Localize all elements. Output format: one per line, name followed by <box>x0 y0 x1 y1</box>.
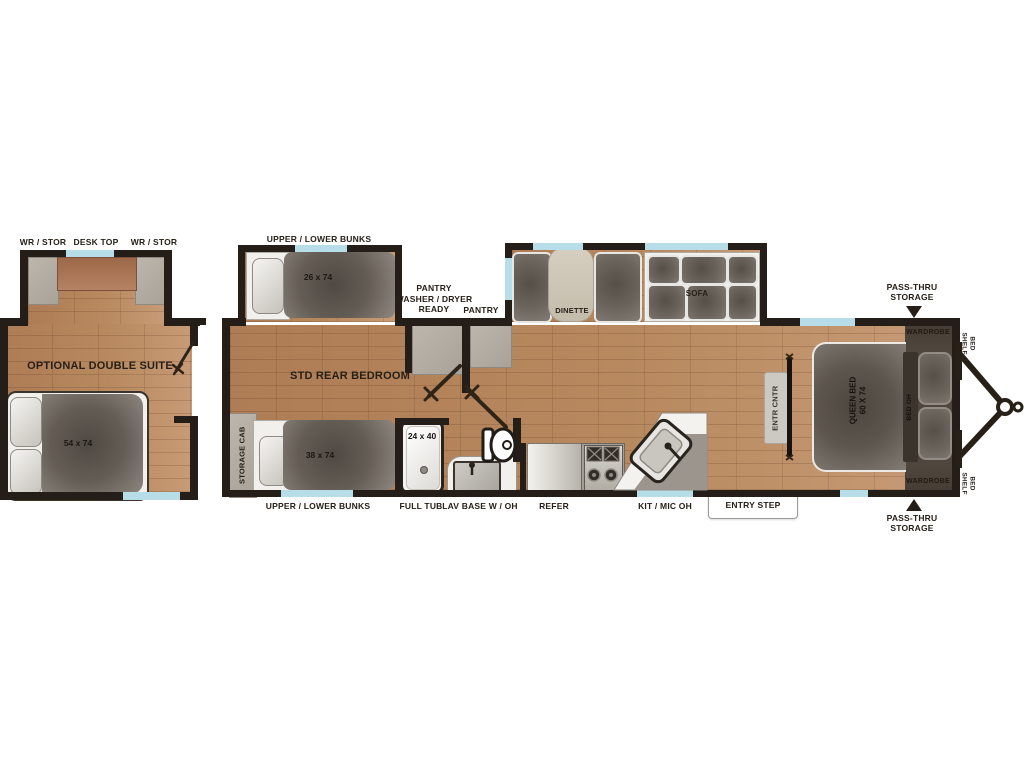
suite-bed-pillow-1 <box>10 397 42 447</box>
bed-shelf-bottom-label: BED SHELF <box>961 472 976 494</box>
bottom-bunk-label: UPPER / LOWER BUNKS <box>238 501 398 513</box>
window <box>800 318 855 326</box>
queen-pillow-top <box>918 352 952 405</box>
entry-step-label: ENTRY STEP <box>726 500 781 511</box>
queen-bed-label: QUEEN BED 60 X 74 <box>849 376 868 424</box>
tub-size-label: 24 x 40 <box>399 431 445 442</box>
sofa-back-cushion <box>647 255 681 285</box>
wall <box>520 443 526 491</box>
wall <box>462 318 470 393</box>
window <box>66 250 114 257</box>
window <box>637 490 693 497</box>
window <box>533 243 583 250</box>
pass-thru-arrow-down-icon <box>906 306 922 318</box>
wall <box>238 245 245 326</box>
wall <box>395 418 449 425</box>
dinette-bench-right <box>594 252 642 323</box>
tv <box>787 357 792 457</box>
wall <box>400 318 507 326</box>
wall <box>0 318 8 500</box>
wardrobe-top-label: WARDROBE <box>901 328 955 338</box>
wall <box>164 250 172 325</box>
suite-bed-pillow-2 <box>10 449 42 495</box>
wall <box>405 325 412 373</box>
bed-oh-label: BED OH <box>905 394 916 420</box>
wall <box>174 416 198 423</box>
window <box>505 258 512 300</box>
pantry-cabinet <box>470 324 512 368</box>
suite-label-desk-top: DESK TOP <box>63 237 129 248</box>
bed-shelf-top-wrap: BED SHELF <box>954 320 982 366</box>
storage-cab-label: STORAGE CAB <box>238 427 249 484</box>
refrigerator <box>527 443 583 493</box>
bed-oh-labelwrap: BED OH <box>900 386 920 428</box>
sofa-label: SOFA <box>667 289 727 300</box>
suite-label-wr-stor-right: WR / STOR <box>121 237 187 248</box>
pantry-label: PANTRY <box>458 305 504 317</box>
wall <box>190 318 206 325</box>
pass-thru-arrow-up-icon <box>906 499 922 511</box>
bunk-slide-label: UPPER / LOWER BUNKS <box>236 234 402 245</box>
bed-shelf-bottom-wrap: BED SHELF <box>954 460 982 506</box>
entr-cntr-label: ENTR CNTR <box>771 385 782 430</box>
suite-bed-size-label: 54 x 74 <box>50 438 106 449</box>
wall <box>765 318 952 326</box>
rear-bunk-mattress <box>284 252 395 318</box>
pantry-washer-dryer-cabinet <box>412 324 464 375</box>
wall <box>20 250 28 325</box>
sofa-back-cushion <box>727 255 758 285</box>
suite-room-label: OPTIONAL DOUBLE SUITE <box>14 360 186 374</box>
floorplan-canvas: 54 x 74 WR / STOR DESK TOP WR / STOR OPT… <box>0 0 1024 768</box>
wall <box>190 418 198 500</box>
queen-bed-labelwrap: QUEEN BED 60 X 74 <box>832 374 884 426</box>
window <box>295 245 347 252</box>
rear-bunk-pillow <box>252 258 284 314</box>
bedroom-label: STD REAR BEDROOM <box>265 370 435 384</box>
window <box>840 490 868 497</box>
tub-drain <box>420 466 428 474</box>
lav-label: LAV BASE W / OH <box>436 501 524 513</box>
window <box>645 243 728 250</box>
bed-shelf-top-label: BED SHELF <box>961 332 976 354</box>
pass-thru-bottom-label: PASS-THRU STORAGE <box>878 513 946 535</box>
refer-label: REFER <box>527 501 581 513</box>
dinette-label: DINETTE <box>544 306 600 317</box>
pass-thru-top-label: PASS-THRU STORAGE <box>878 282 946 304</box>
sofa-seat-cushion <box>727 284 758 321</box>
entertainment-center: ENTR CNTR <box>764 372 788 444</box>
kit-label: KIT / MIC OH <box>622 501 708 513</box>
suite-wardrobe-left <box>28 257 59 305</box>
wall <box>760 243 767 326</box>
suite-desk <box>57 257 137 291</box>
wardrobe-bottom-label: WARDROBE <box>901 477 955 487</box>
window <box>281 490 353 497</box>
wall <box>222 318 230 497</box>
suite-wardrobe-right <box>135 257 166 305</box>
stove <box>584 445 623 492</box>
rear-bunk-size-label: 26 x 74 <box>295 272 341 283</box>
bottom-bunk-size-label: 38 x 74 <box>297 450 343 461</box>
wall <box>395 418 402 497</box>
queen-pillow-bottom <box>918 407 952 460</box>
sofa-back-cushion <box>680 255 728 285</box>
window <box>123 492 180 500</box>
